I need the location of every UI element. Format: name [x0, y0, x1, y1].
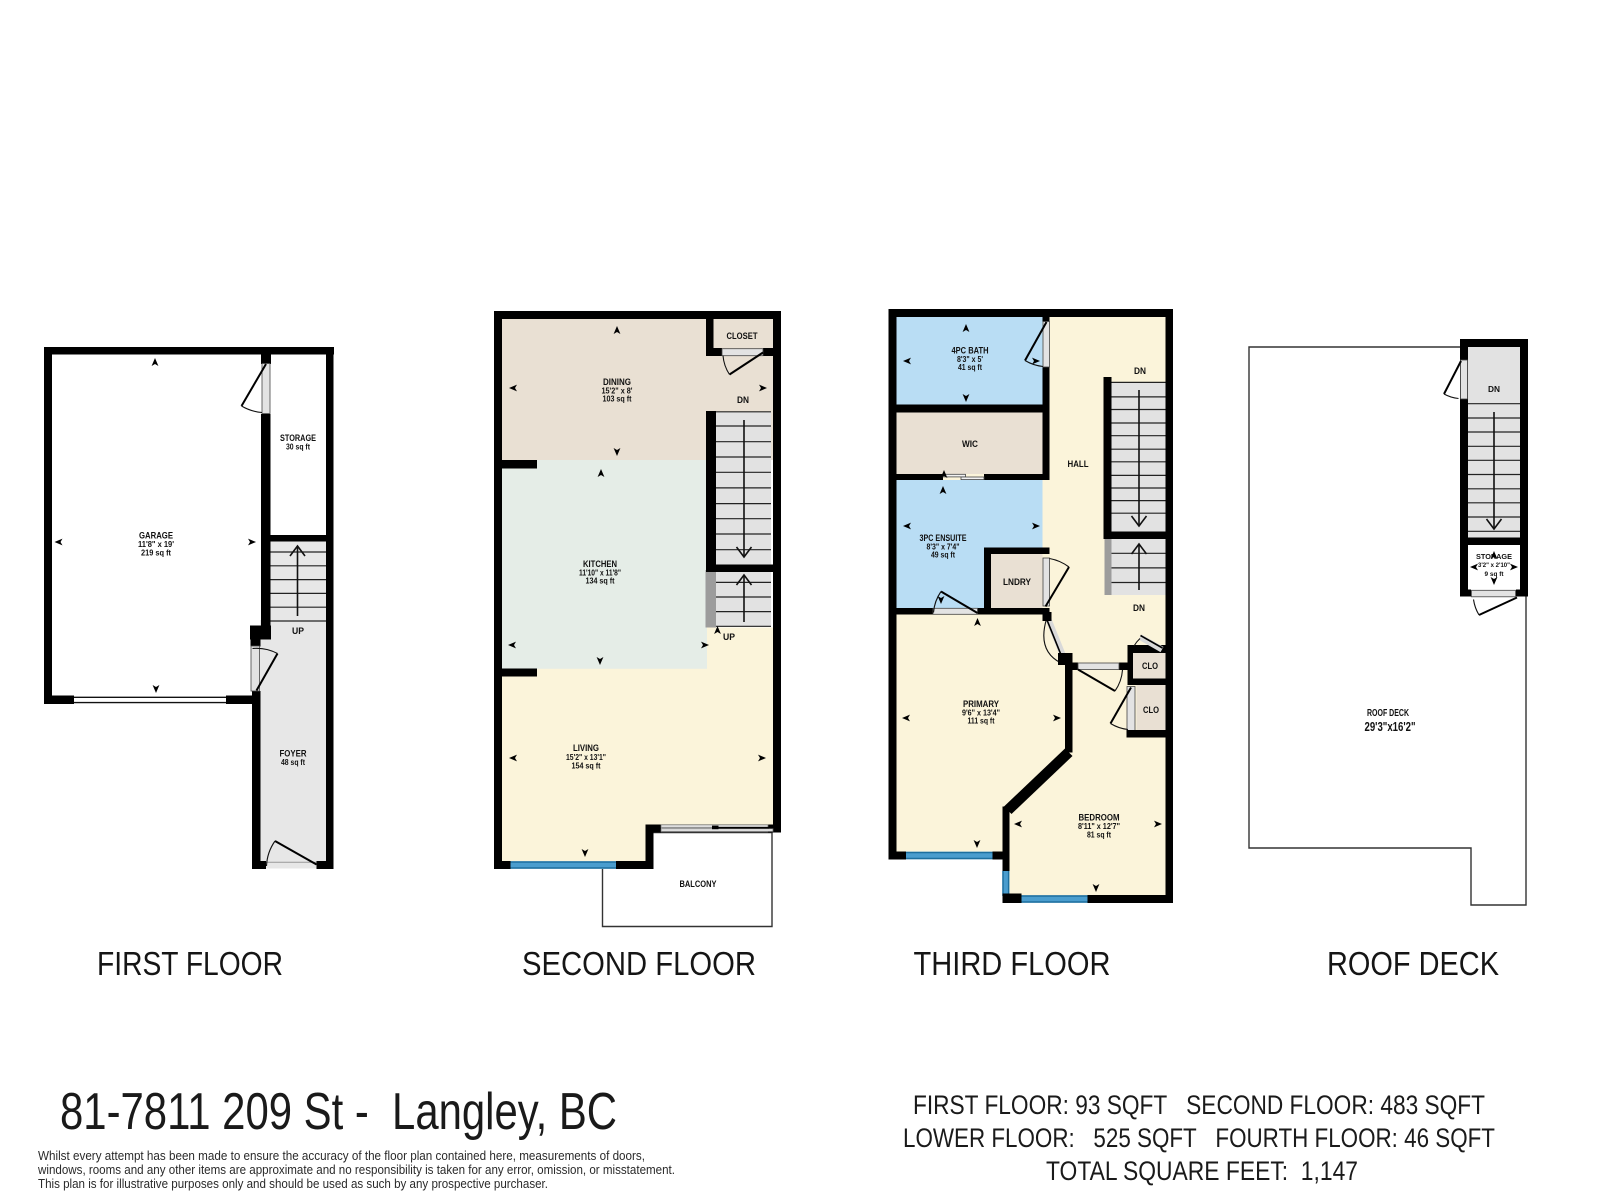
svg-text:81 sq ft: 81 sq ft	[1087, 831, 1111, 840]
svg-text:GARAGE: GARAGE	[139, 531, 173, 541]
svg-text:WIC: WIC	[962, 439, 979, 449]
svg-text:49 sq ft: 49 sq ft	[931, 551, 955, 560]
svg-text:9 sq ft: 9 sq ft	[1485, 571, 1505, 578]
svg-text:Whilst every attempt has been: Whilst every attempt has been made to en…	[38, 1149, 645, 1163]
svg-text:81-7811 209 St - Langley, BC: 81-7811 209 St - Langley, BC	[60, 1083, 617, 1141]
svg-text:103 sq ft: 103 sq ft	[603, 395, 632, 404]
svg-text:3'2" x 2'10": 3'2" x 2'10"	[1478, 562, 1510, 569]
svg-text:DN: DN	[737, 395, 749, 405]
svg-text:windows, rooms and any other i: windows, rooms and any other items are a…	[37, 1163, 675, 1177]
svg-text:41 sq ft: 41 sq ft	[958, 363, 982, 372]
svg-text:LNDRY: LNDRY	[1003, 577, 1031, 587]
svg-text:ROOF DECK: ROOF DECK	[1327, 945, 1499, 982]
svg-text:219 sq ft: 219 sq ft	[141, 548, 171, 557]
svg-text:This plan is for illustrative: This plan is for illustrative purposes o…	[38, 1177, 548, 1191]
svg-text:111 sq ft: 111 sq ft	[968, 717, 995, 726]
svg-text:FIRST FLOOR: 93 SQFT SECOND: FIRST FLOOR: 93 SQFT SECOND FLOOR: 483 S…	[913, 1090, 1485, 1120]
svg-text:134 sq ft: 134 sq ft	[586, 577, 615, 586]
svg-text:FIRST FLOOR: FIRST FLOOR	[97, 945, 283, 982]
svg-text:LIVING: LIVING	[573, 743, 599, 753]
svg-text:154 sq ft: 154 sq ft	[572, 762, 601, 771]
svg-text:DN: DN	[1133, 603, 1145, 613]
svg-text:BEDROOM: BEDROOM	[1079, 813, 1120, 823]
svg-text:CLO: CLO	[1143, 705, 1159, 715]
svg-text:ROOF DECK: ROOF DECK	[1367, 707, 1409, 719]
svg-text:HALL: HALL	[1068, 459, 1090, 469]
svg-text:CLO: CLO	[1142, 661, 1158, 671]
svg-text:CLOSET: CLOSET	[727, 331, 759, 341]
svg-text:DN: DN	[1134, 366, 1146, 376]
svg-text:THIRD FLOOR: THIRD FLOOR	[914, 945, 1111, 982]
svg-text:SECOND FLOOR: SECOND FLOOR	[522, 945, 756, 982]
svg-text:UP: UP	[292, 626, 304, 636]
svg-text:BALCONY: BALCONY	[680, 879, 717, 889]
svg-text:30 sq ft: 30 sq ft	[286, 442, 310, 451]
svg-text:TOTAL SQUARE FEET: 1,147: TOTAL SQUARE FEET: 1,147	[1046, 1156, 1358, 1186]
svg-text:48 sq ft: 48 sq ft	[281, 758, 305, 767]
svg-text:29'3"x16'2": 29'3"x16'2"	[1365, 720, 1416, 734]
svg-text:UP: UP	[723, 632, 735, 642]
svg-text:LOWER FLOOR: 525 SQFT FOUR: LOWER FLOOR: 525 SQFT FOURTH FLOOR: 46 S…	[903, 1123, 1495, 1153]
svg-text:DN: DN	[1488, 385, 1500, 394]
svg-text:FOYER: FOYER	[280, 749, 308, 759]
svg-text:15'2" x 13'1": 15'2" x 13'1"	[566, 753, 606, 762]
